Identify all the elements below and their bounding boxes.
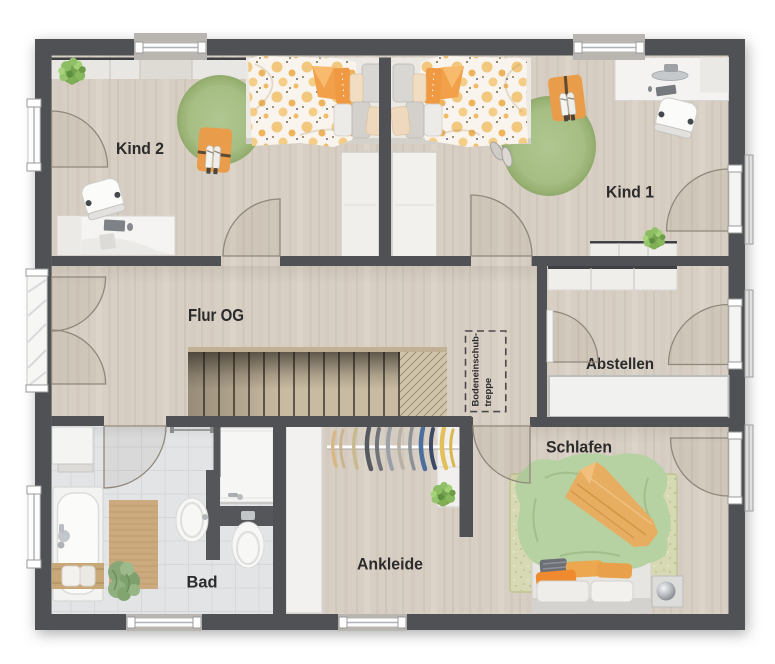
svg-text:Bodeneinschub-: Bodeneinschub-: [470, 333, 481, 406]
svg-text:Bad: Bad: [187, 574, 218, 592]
svg-text:Ankleide: Ankleide: [357, 556, 423, 574]
svg-text:Kind 1: Kind 1: [606, 184, 654, 202]
svg-text:Schlafen: Schlafen: [546, 439, 612, 457]
svg-text:Flur OG: Flur OG: [188, 305, 244, 325]
svg-text:Kind 2: Kind 2: [116, 140, 164, 158]
svg-text:treppe: treppe: [482, 378, 493, 407]
